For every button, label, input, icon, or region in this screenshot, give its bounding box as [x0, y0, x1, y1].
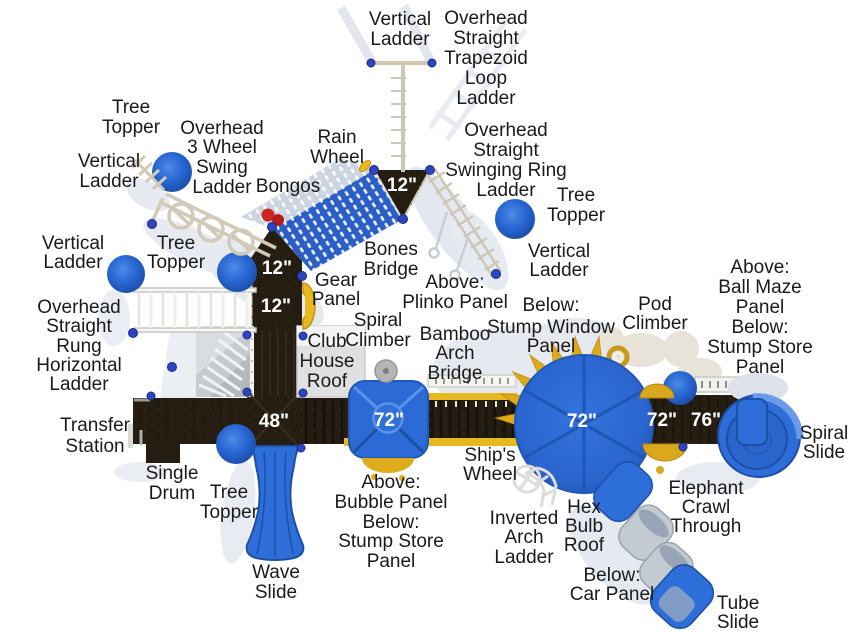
- svg-text:Straight: Straight: [473, 140, 539, 161]
- svg-text:Hex: Hex: [567, 497, 601, 518]
- svg-text:Ladder: Ladder: [494, 547, 554, 568]
- svg-text:72": 72": [647, 410, 677, 431]
- svg-text:Ladder: Ladder: [43, 252, 103, 273]
- svg-text:Ladder: Ladder: [192, 177, 252, 198]
- svg-text:Single: Single: [146, 463, 199, 484]
- svg-text:12": 12": [262, 258, 292, 279]
- svg-text:Panel: Panel: [736, 297, 785, 318]
- svg-text:Below:: Below:: [583, 565, 640, 586]
- svg-text:Stump Store: Stump Store: [707, 337, 813, 358]
- svg-text:Overhead: Overhead: [180, 118, 263, 139]
- svg-text:Climber: Climber: [622, 313, 688, 334]
- svg-text:Elephant: Elephant: [668, 478, 744, 499]
- svg-text:Bridge: Bridge: [364, 259, 419, 280]
- svg-text:Stump Store: Stump Store: [338, 531, 444, 552]
- svg-text:Overhead: Overhead: [37, 297, 120, 318]
- svg-text:Ball Maze: Ball Maze: [718, 277, 801, 298]
- svg-text:Arch: Arch: [504, 527, 543, 548]
- svg-text:Ladder: Ladder: [370, 29, 430, 50]
- svg-text:Rung: Rung: [56, 336, 101, 357]
- svg-text:Through: Through: [671, 516, 742, 537]
- svg-text:Roof: Roof: [564, 535, 605, 556]
- svg-text:Below:: Below:: [522, 295, 579, 316]
- svg-text:Above:: Above:: [425, 272, 484, 293]
- svg-text:48": 48": [259, 411, 289, 432]
- svg-text:Slide: Slide: [255, 582, 297, 603]
- svg-text:Vertical: Vertical: [42, 233, 104, 254]
- svg-text:Vertical: Vertical: [369, 9, 431, 30]
- svg-text:Panel: Panel: [736, 357, 785, 378]
- svg-text:Rain: Rain: [317, 127, 356, 148]
- svg-text:Tree: Tree: [157, 233, 195, 254]
- svg-text:House: House: [300, 351, 355, 372]
- svg-text:Loop: Loop: [465, 68, 507, 89]
- svg-text:Panel: Panel: [527, 336, 576, 357]
- svg-text:72": 72": [567, 411, 597, 432]
- svg-text:Trapezoid: Trapezoid: [444, 48, 528, 69]
- svg-text:Slide: Slide: [803, 442, 845, 463]
- svg-text:Tree: Tree: [210, 482, 248, 503]
- svg-text:Topper: Topper: [200, 502, 259, 523]
- svg-text:Straight: Straight: [46, 316, 112, 337]
- svg-text:Vertical: Vertical: [528, 241, 590, 262]
- svg-text:Spiral: Spiral: [800, 423, 849, 444]
- svg-text:Roof: Roof: [307, 371, 348, 392]
- svg-text:Transfer: Transfer: [60, 415, 131, 436]
- svg-text:Overhead: Overhead: [464, 120, 547, 141]
- svg-text:Car Panel: Car Panel: [570, 584, 655, 605]
- svg-text:Bamboo: Bamboo: [420, 324, 491, 345]
- svg-text:Below:: Below:: [731, 317, 788, 338]
- svg-text:Wheel: Wheel: [310, 147, 364, 168]
- svg-text:Ladder: Ladder: [476, 180, 536, 201]
- svg-text:Tree: Tree: [557, 185, 595, 206]
- svg-text:Below:: Below:: [362, 512, 419, 533]
- svg-text:Topper: Topper: [547, 205, 606, 226]
- svg-text:Arch: Arch: [435, 343, 474, 364]
- svg-text:Stump Window: Stump Window: [487, 317, 615, 338]
- svg-text:Ladder: Ladder: [529, 260, 589, 281]
- svg-text:12": 12": [387, 175, 417, 196]
- svg-text:Topper: Topper: [102, 117, 161, 138]
- svg-text:Straight: Straight: [453, 28, 519, 49]
- svg-text:Bongos: Bongos: [256, 176, 320, 197]
- svg-text:Inverted: Inverted: [490, 508, 559, 529]
- svg-text:12": 12": [261, 296, 291, 317]
- svg-text:Bulb: Bulb: [565, 516, 603, 537]
- svg-text:Gear: Gear: [315, 270, 358, 291]
- svg-text:Overhead: Overhead: [444, 8, 527, 29]
- svg-text:Bones: Bones: [364, 239, 418, 260]
- svg-text:Tree: Tree: [112, 97, 150, 118]
- svg-text:Ladder: Ladder: [79, 171, 139, 192]
- svg-text:Climber: Climber: [345, 330, 411, 351]
- svg-text:Ladder: Ladder: [456, 88, 516, 109]
- svg-text:Spiral: Spiral: [354, 310, 403, 331]
- svg-text:Above:: Above:: [361, 472, 420, 493]
- svg-text:Wave: Wave: [252, 562, 300, 583]
- svg-text:Tube: Tube: [717, 593, 760, 614]
- svg-text:Topper: Topper: [147, 252, 206, 273]
- svg-text:Horizontal: Horizontal: [36, 355, 122, 376]
- svg-text:Crawl: Crawl: [682, 497, 731, 518]
- svg-text:Vertical: Vertical: [78, 151, 140, 172]
- svg-text:Bubble Panel: Bubble Panel: [334, 492, 447, 513]
- svg-text:Swing: Swing: [196, 157, 248, 178]
- svg-text:Bridge: Bridge: [428, 363, 483, 384]
- svg-text:76": 76": [691, 410, 721, 431]
- svg-text:Ladder: Ladder: [49, 374, 109, 395]
- svg-text:Wheel: Wheel: [463, 464, 517, 485]
- svg-text:Swinging Ring: Swinging Ring: [445, 160, 566, 181]
- svg-text:Ship's: Ship's: [464, 445, 515, 466]
- svg-text:Drum: Drum: [149, 483, 195, 504]
- svg-text:Panel: Panel: [312, 289, 361, 310]
- svg-text:Panel: Panel: [367, 551, 416, 572]
- svg-text:Plinko Panel: Plinko Panel: [402, 292, 508, 313]
- svg-text:Slide: Slide: [717, 612, 759, 633]
- svg-text:Above:: Above:: [730, 257, 789, 278]
- svg-text:Station: Station: [65, 436, 124, 457]
- svg-text:Club: Club: [307, 331, 346, 352]
- svg-text:3 Wheel: 3 Wheel: [187, 137, 257, 158]
- svg-text:72": 72": [374, 410, 404, 431]
- svg-text:Pod: Pod: [638, 294, 672, 315]
